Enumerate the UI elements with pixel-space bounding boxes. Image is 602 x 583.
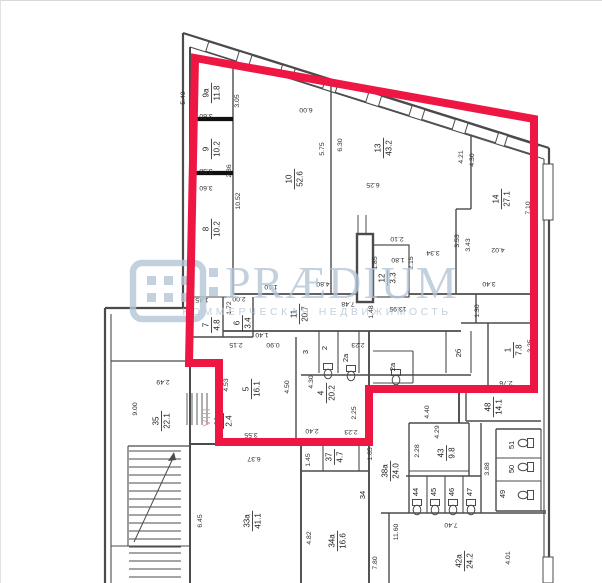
toilet-cistern — [347, 366, 356, 372]
toilet-icon — [518, 491, 533, 500]
room-label: 1427.1 — [492, 189, 512, 209]
room-label: 17.8 — [504, 342, 524, 358]
dimension-label: 10.52 — [235, 192, 242, 209]
room-area: 10.2 — [213, 221, 222, 237]
dimension-label: 3.60 — [199, 184, 212, 191]
dimension-label: 4.30 — [308, 375, 315, 388]
dimension-label: 4.01 — [505, 551, 512, 564]
premises-number-label: VIII — [202, 407, 213, 426]
dimension-label: 3.53 — [454, 234, 461, 247]
dimension-label: 4.02 — [491, 246, 504, 253]
floor-plan-page: 9а11.8910.2810.21052.61343.21427.1123.31… — [0, 0, 602, 583]
dimension-label: 7.80 — [372, 556, 379, 569]
toilet-bowl — [347, 371, 355, 381]
dimension-label: 9.00 — [132, 402, 139, 415]
room-label: 374.7 — [325, 449, 345, 465]
dimension-label: 7.40 — [444, 521, 457, 528]
dimension-label: 6.37 — [247, 455, 260, 462]
dimension-label: 6.45 — [197, 514, 204, 527]
dimension-label: 2.76 — [499, 379, 512, 386]
stall-number-label: 3 — [301, 350, 310, 354]
toilet-bowl — [518, 491, 528, 499]
stall-number-label: 2а — [388, 362, 397, 371]
stall-number-label: 34 — [358, 491, 367, 499]
stall-number-label: 50 — [507, 465, 516, 473]
stall-number-label: 2а — [341, 353, 350, 362]
dimension-label: 2.40 — [305, 427, 318, 434]
toilet-icon — [347, 366, 356, 381]
toilet-icon — [324, 364, 333, 379]
room-label: 9а11.8 — [202, 83, 222, 103]
stall-number-label: 47 — [465, 488, 474, 496]
toilet-cistern — [413, 500, 422, 506]
room-area: 11.8 — [213, 85, 222, 101]
toilet-cistern — [431, 500, 440, 506]
room-number: 1 — [504, 347, 513, 352]
room-label: 439.8 — [437, 445, 457, 461]
room-label: 42а24.2 — [455, 551, 475, 571]
dimension-label: 2.10 — [390, 235, 403, 242]
room-label: 33а41.1 — [243, 511, 263, 531]
room-number: 10 — [285, 174, 294, 183]
stair-arrow-icon — [168, 452, 176, 461]
room-number: 7 — [202, 322, 211, 327]
dimension-label: 1.40 — [255, 331, 268, 338]
toilet-icon — [518, 439, 533, 448]
toilet-cistern — [324, 364, 333, 370]
dimension-label: 4.21 — [458, 150, 465, 163]
dimension-label: 5.75 — [319, 142, 326, 155]
stall-number-label: 2б — [454, 349, 463, 357]
room-area: 22.1 — [163, 413, 172, 429]
dimension-label: 3.88 — [484, 462, 491, 475]
room-label: 4814.1 — [484, 397, 504, 417]
dimension-label: 2.15 — [229, 341, 242, 348]
dimension-label: 5.49 — [180, 91, 187, 104]
room-label: 420.2 — [317, 383, 337, 403]
room-area: 24.0 — [392, 463, 401, 479]
room-area: 16.1 — [253, 381, 262, 397]
dimension-label: 4.53 — [223, 378, 230, 391]
dimension-label: 4.29 — [434, 425, 441, 438]
toilet-icon — [518, 463, 533, 472]
dimension-label: 4.82 — [306, 531, 313, 544]
room-label: 1343.2 — [374, 138, 394, 158]
dimension-label: 3.05 — [234, 94, 241, 107]
dimension-label: 0.90 — [266, 341, 279, 348]
dimension-label: 1.65 — [367, 447, 374, 460]
window-icon — [543, 557, 553, 583]
dimension-label: 6.00 — [299, 106, 312, 113]
stall-number-label: 45 — [429, 488, 438, 496]
toilet-bowl — [518, 439, 528, 447]
dimension-label: 2.28 — [414, 444, 421, 457]
room-area: 4.7 — [336, 451, 345, 463]
dimension-label: 2.23 — [344, 428, 357, 435]
room-number: 33а — [243, 514, 252, 528]
room-number: 14 — [492, 194, 501, 203]
dimension-label: 4.40 — [424, 405, 431, 418]
toilet-cistern — [528, 439, 534, 448]
room-label: 74.8 — [202, 317, 222, 333]
stall-number-label: 51 — [507, 441, 516, 449]
dimension-label: 6.30 — [337, 138, 344, 151]
room-label: 38а24.0 — [381, 461, 401, 481]
toilet-cistern — [467, 500, 476, 506]
room-area: 4.8 — [213, 319, 222, 331]
room-number: 34а — [328, 534, 337, 548]
stall-number-label: 2 — [320, 346, 329, 350]
dimension-label: 1.45 — [305, 453, 312, 466]
dimension-label: 1.30 — [474, 304, 481, 317]
room-area: 3.4 — [244, 317, 253, 329]
room-area: 14.1 — [495, 399, 504, 415]
dimension-label: 4.30 — [469, 153, 476, 166]
room-label: 810.2 — [202, 219, 222, 239]
room-number: 9 — [202, 146, 211, 151]
toilet-cistern — [528, 463, 534, 472]
room-area: 10.2 — [213, 141, 222, 157]
room-area: 2.4 — [225, 415, 234, 427]
room-area: 20.2 — [328, 385, 337, 401]
dimension-label: 2.23 — [351, 341, 364, 348]
room-area: 9.8 — [448, 447, 457, 459]
room-label: 1052.6 — [285, 169, 305, 189]
room-number: 48 — [484, 402, 493, 411]
watermark-subtitle-text: КОММЕРЧЕСКАЯ НЕДВИЖИМОСТЬ — [182, 306, 451, 318]
toilet-cistern — [528, 491, 534, 500]
dimension-label: 2.49 — [156, 378, 169, 385]
dimension-label: 4.50 — [284, 380, 291, 393]
room-number: 6 — [233, 320, 242, 325]
room-number: 35 — [152, 416, 161, 425]
room-number: 42а — [455, 554, 464, 568]
dimension-label: 3.40 — [482, 280, 495, 287]
room-number: 37 — [325, 452, 334, 461]
toilet-bowl — [324, 369, 332, 379]
room-area: 24.2 — [466, 553, 475, 569]
room-number: 13 — [374, 143, 383, 152]
dimension-label: 3.43 — [465, 238, 472, 251]
dimension-label: 6.25 — [366, 181, 379, 188]
room-label: 910.2 — [202, 139, 222, 159]
room-number: 5 — [242, 386, 251, 391]
stall-number-label: 49 — [498, 490, 507, 498]
room-number: 8 — [202, 226, 211, 231]
stall-number-label: 46 — [447, 488, 456, 496]
watermark-brand-text: PRÆDIUM — [225, 257, 459, 308]
dimension-label: 3.55 — [244, 431, 257, 438]
room-area: 7.8 — [515, 344, 524, 356]
toilet-bowl — [518, 463, 528, 471]
floor-plan-svg: 9а11.8910.2810.21052.61343.21427.1123.31… — [1, 1, 602, 583]
room-area: 52.6 — [296, 171, 305, 187]
room-label: 3522.1 — [152, 411, 172, 431]
dimension-label: 2.86 — [226, 164, 233, 177]
room-area: 16.6 — [339, 533, 348, 549]
watermark: PRÆDIUM КОММЕРЧЕСКАЯ НЕДВИЖИМОСТЬ — [133, 257, 459, 319]
window-icon — [543, 164, 553, 220]
dimension-label: 11.60 — [393, 524, 400, 541]
dimension-label: 3.58 — [199, 167, 212, 174]
room-area: 41.1 — [254, 513, 263, 529]
dimension-label: 3.60 — [199, 112, 212, 119]
room-area: 43.2 — [385, 140, 394, 156]
room-number: 9а — [202, 88, 211, 97]
dimension-label: 3.34 — [426, 249, 439, 256]
room-number: 43 — [437, 448, 446, 457]
stall-number-label: 44 — [411, 488, 420, 496]
room-label: 516.1 — [242, 379, 262, 399]
dimension-label: 2.25 — [351, 406, 358, 419]
room-area: 27.1 — [503, 191, 512, 207]
room-number: 4 — [317, 390, 326, 395]
toilet-cistern — [449, 500, 458, 506]
room-label: 34а16.6 — [328, 531, 348, 551]
room-number: 38а — [381, 464, 390, 478]
